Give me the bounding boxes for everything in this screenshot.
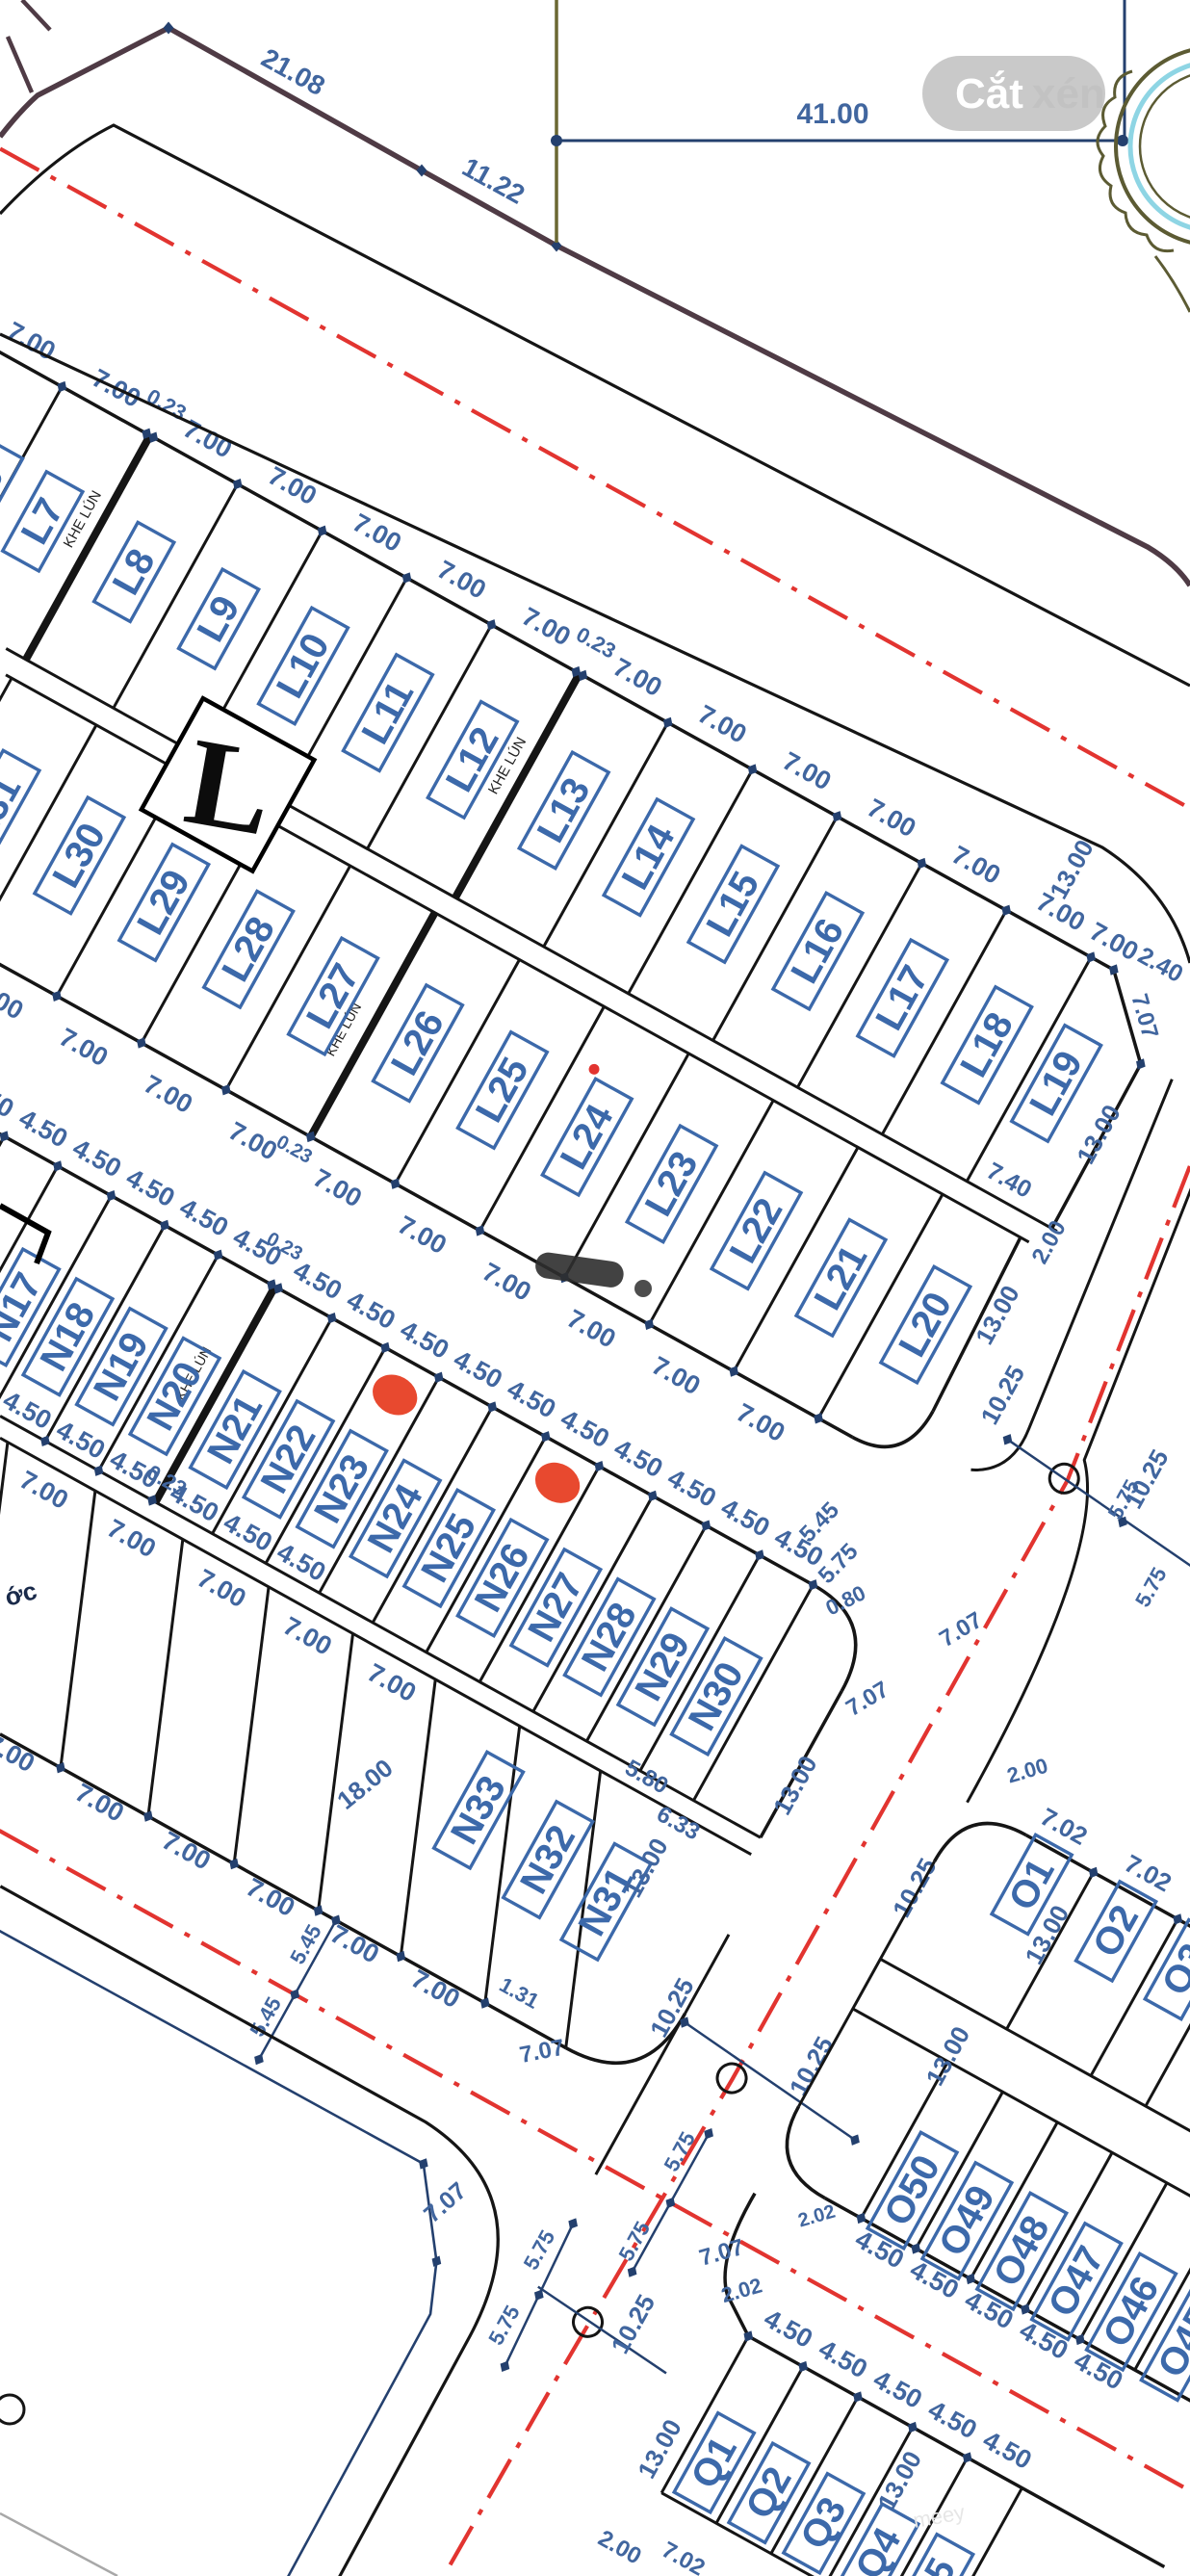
- svg-text:Cắt: Cắt: [955, 69, 1023, 117]
- svg-text:xén: xén: [1032, 70, 1105, 117]
- svg-text:41.00: 41.00: [796, 98, 868, 130]
